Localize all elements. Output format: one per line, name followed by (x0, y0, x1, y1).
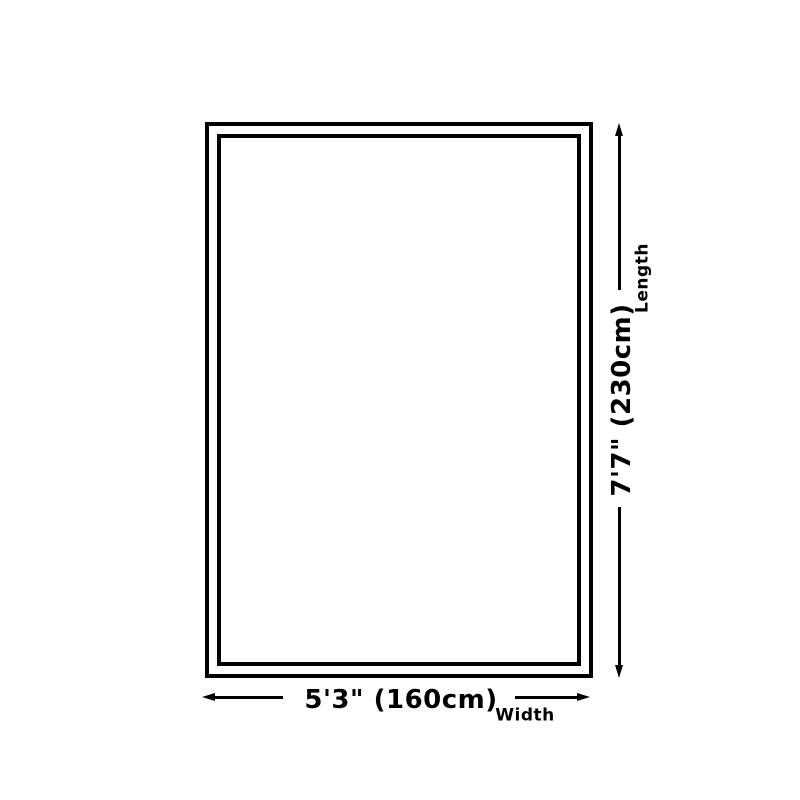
arrow-right-icon (577, 693, 590, 701)
width-arrow-left-shaft (214, 696, 283, 699)
rug-outer-border (205, 122, 593, 678)
width-axis-label: Width (495, 708, 554, 725)
length-arrow-top-shaft (618, 134, 621, 290)
arrow-down-icon (615, 665, 623, 678)
width-value-label: 5'3" (160cm) (304, 687, 497, 713)
length-axis-label: Length (635, 243, 652, 313)
length-value-label: 7'7" (230cm) (609, 303, 635, 496)
size-diagram: Length 7'7" (230cm) 5'3" (160cm) Width (0, 0, 800, 800)
rug-inner-border (217, 134, 581, 666)
length-arrow-bottom-shaft (618, 507, 621, 665)
width-arrow-right-shaft (515, 696, 577, 699)
